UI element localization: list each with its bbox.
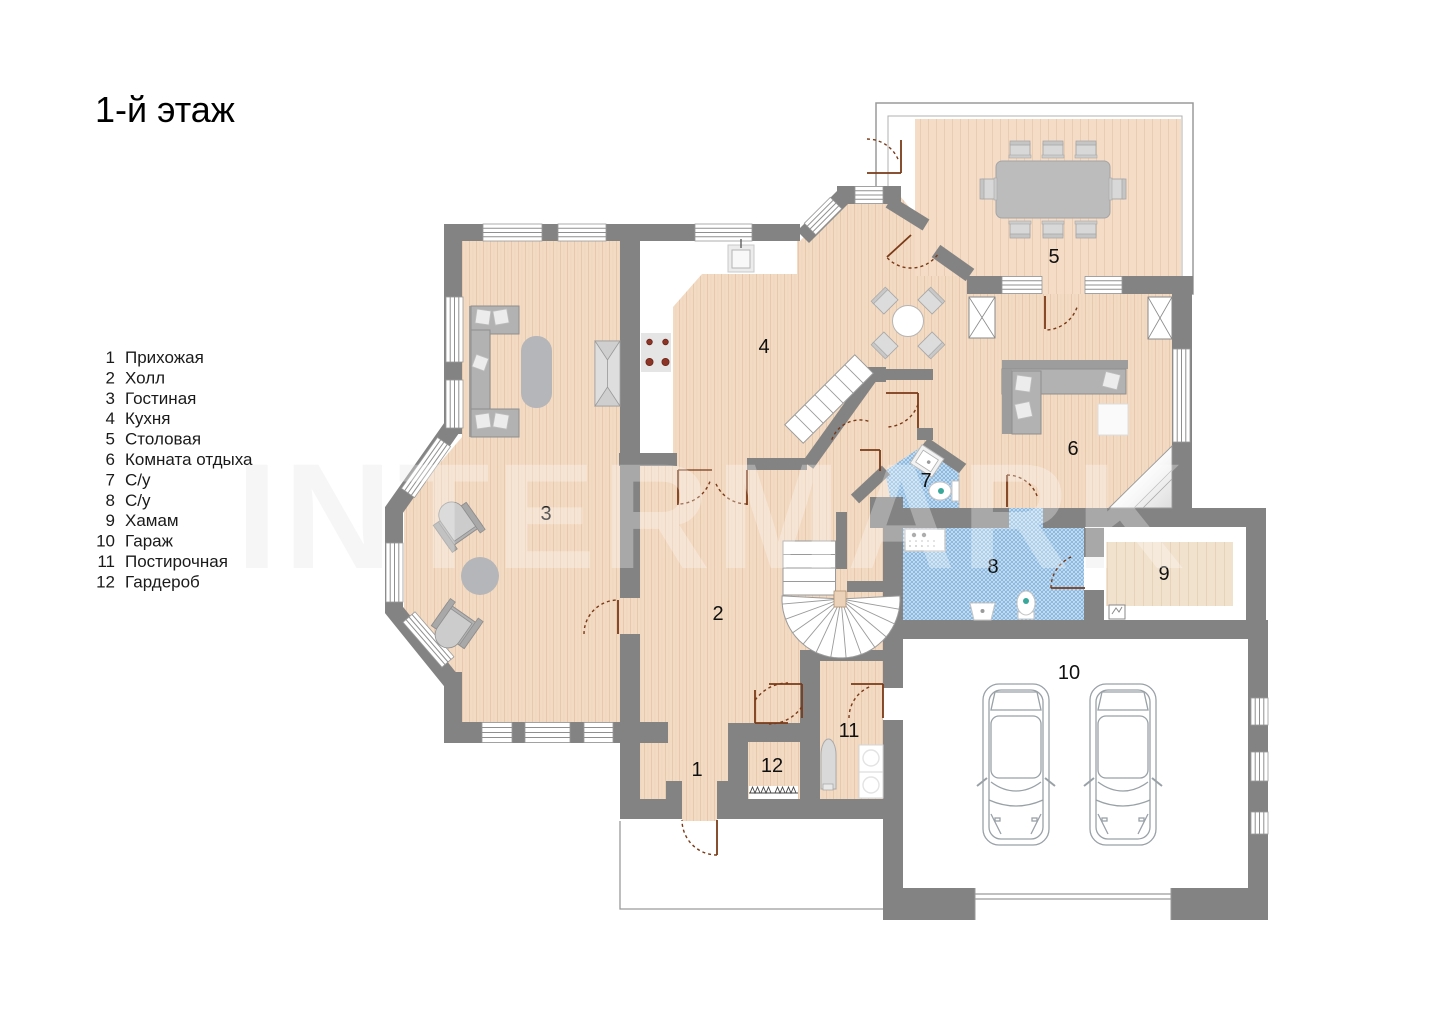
svg-text:Столовая: Столовая: [125, 430, 201, 449]
svg-text:2: 2: [106, 368, 115, 387]
svg-text:Гостиная: Гостиная: [125, 389, 196, 408]
svg-text:1-й этаж: 1-й этаж: [95, 89, 235, 130]
svg-text:7: 7: [106, 470, 115, 489]
svg-text:Прихожая: Прихожая: [125, 348, 204, 367]
svg-text:С/у: С/у: [125, 491, 151, 510]
svg-text:12: 12: [761, 755, 783, 777]
svg-text:Комната отдыха: Комната отдыха: [125, 450, 253, 469]
svg-text:8: 8: [106, 491, 115, 510]
svg-text:Гардероб: Гардероб: [125, 572, 200, 591]
svg-text:6: 6: [106, 450, 115, 469]
svg-text:5: 5: [1048, 246, 1059, 268]
svg-text:2: 2: [712, 603, 723, 625]
svg-text:4: 4: [106, 409, 115, 428]
svg-text:1: 1: [106, 348, 115, 367]
svg-text:3: 3: [106, 389, 115, 408]
svg-text:Постирочная: Постирочная: [125, 552, 228, 571]
svg-text:9: 9: [106, 511, 115, 530]
svg-text:Хамам: Хамам: [125, 511, 179, 530]
svg-text:С/у: С/у: [125, 470, 151, 489]
svg-text:11: 11: [839, 720, 860, 742]
svg-text:INTERMARK: INTERMARK: [236, 432, 1190, 600]
svg-text:11: 11: [97, 552, 115, 571]
svg-text:4: 4: [758, 336, 769, 358]
svg-text:1: 1: [691, 759, 702, 781]
svg-text:12: 12: [96, 572, 115, 591]
svg-text:Холл: Холл: [125, 368, 165, 387]
svg-text:10: 10: [96, 532, 115, 551]
svg-text:Гараж: Гараж: [125, 532, 174, 551]
svg-text:Кухня: Кухня: [125, 409, 171, 428]
svg-text:10: 10: [1058, 662, 1080, 684]
svg-text:5: 5: [106, 430, 115, 449]
